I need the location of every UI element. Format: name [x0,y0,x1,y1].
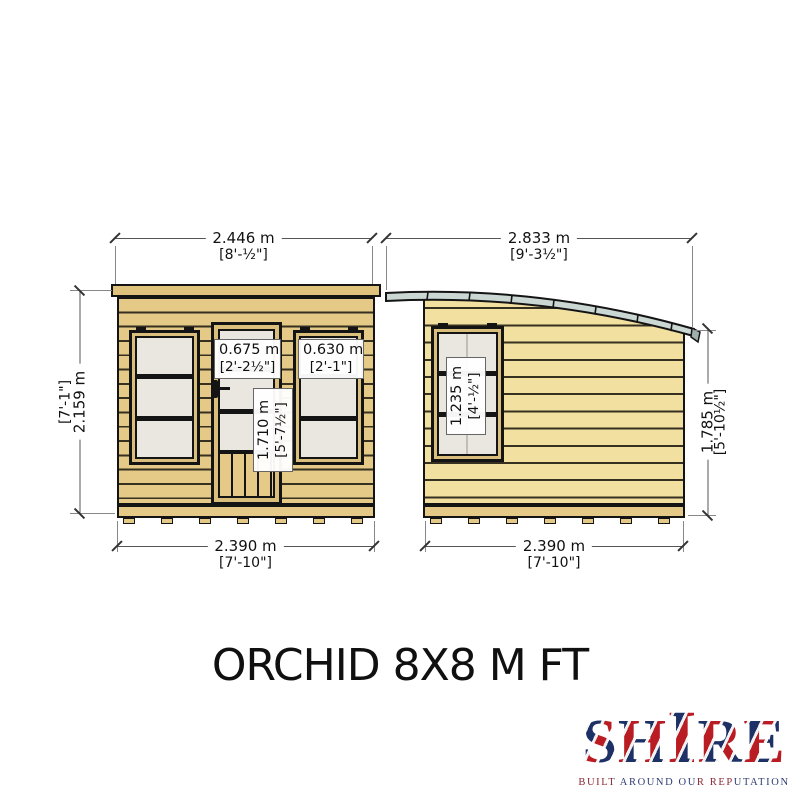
dim-side-height: 1.785 m [5'-10½"] [687,328,727,515]
brand-letter: H [618,708,667,776]
brand-logo: SHIRE BUILT AROUND OUR REPUTATION [574,702,794,788]
side-skid [544,518,556,524]
extension-line [374,521,375,552]
window-hinge [438,323,448,329]
tag-metric: 1.235 m [449,362,466,430]
brand-letter: I [667,696,697,779]
tag-imperial: [4'-½"] [466,362,483,430]
extension-line [683,521,684,552]
brand-tagline: BUILT AROUND OUR REPUTATION [574,777,794,788]
tag-door-height: 1.710 m [5'-7½"] [253,388,293,472]
side-skid [506,518,518,524]
window-hinge [184,327,194,333]
brand-letter: S [582,708,617,776]
dim-imperial-label: [7'-10"] [117,555,374,571]
door-handle-bar [218,387,230,390]
dim-imperial-label: [9'-3½"] [386,247,692,263]
dim-metric-label: 2.390 m [516,537,592,555]
dim-front-width: 2.446 m [8'-½"] [115,228,372,268]
tag-metric: 1.710 m [256,393,273,467]
tag-door-width: 0.675 m [2'-2½"] [214,339,281,379]
dim-metric-label: 2.833 m [501,229,577,247]
dim-imperial-label: [7'-1"] [57,290,73,513]
front-skid [313,518,325,524]
side-skid [468,518,480,524]
window-pane [301,421,356,457]
front-skid [237,518,249,524]
tag-metric: 0.630 m [303,342,359,359]
dim-imperial-label: [7'-10"] [425,555,683,571]
dim-side-base-width: 2.390 m [7'-10"] [425,536,683,576]
front-left-window-glazing [135,336,194,459]
dim-side-width: 2.833 m [9'-3½"] [386,228,692,268]
window-hinge [300,327,310,333]
window-pane [137,421,192,457]
extension-line [372,246,373,284]
dim-front-base-width: 2.390 m [7'-10"] [117,536,374,576]
side-curved-roof [380,280,710,350]
front-skid [161,518,173,524]
window-hinge [487,323,497,329]
dim-imperial-label: [8'-½"] [115,247,372,263]
tag-imperial: [2'-1"] [303,359,359,376]
side-floor-base [423,505,685,518]
product-dimension-drawing: 2.446 m [8'-½"] 2.833 m [9'-3½"] 2.390 m… [0,0,800,800]
window-hinge [136,327,146,333]
dim-metric-label: 2.446 m [205,229,281,247]
front-skid [199,518,211,524]
front-left-window [129,330,200,465]
brand-letter: R [698,708,744,776]
tag-front-window-width: 0.630 m [2'-1"] [298,339,364,379]
front-skid [275,518,287,524]
tag-metric: 0.675 m [219,342,276,359]
side-skid [430,518,442,524]
front-skid [123,518,135,524]
front-skid [351,518,363,524]
dim-front-height: 2.159 m [7'-1"] [59,290,99,513]
tag-imperial: [5'-7½"] [273,393,290,467]
window-pane [137,379,192,415]
product-title: ORCHID 8X8 M FT [0,640,800,691]
front-roof-fascia [111,284,381,297]
tag-imperial: [2'-2½"] [219,359,276,376]
side-skid [582,518,594,524]
extension-line [692,246,693,328]
side-skid [658,518,670,524]
tag-side-window-height: 1.235 m [4'-½"] [446,357,486,435]
window-pane [137,338,192,374]
window-hinge [348,327,358,333]
window-pane [301,379,356,415]
dim-metric-label: 2.390 m [207,537,283,555]
side-skid [620,518,632,524]
dim-imperial-label: [5'-10½"] [712,328,728,515]
front-floor-base [117,505,375,518]
brand-letter: E [743,708,785,776]
brand-name: SHIRE [574,702,794,774]
